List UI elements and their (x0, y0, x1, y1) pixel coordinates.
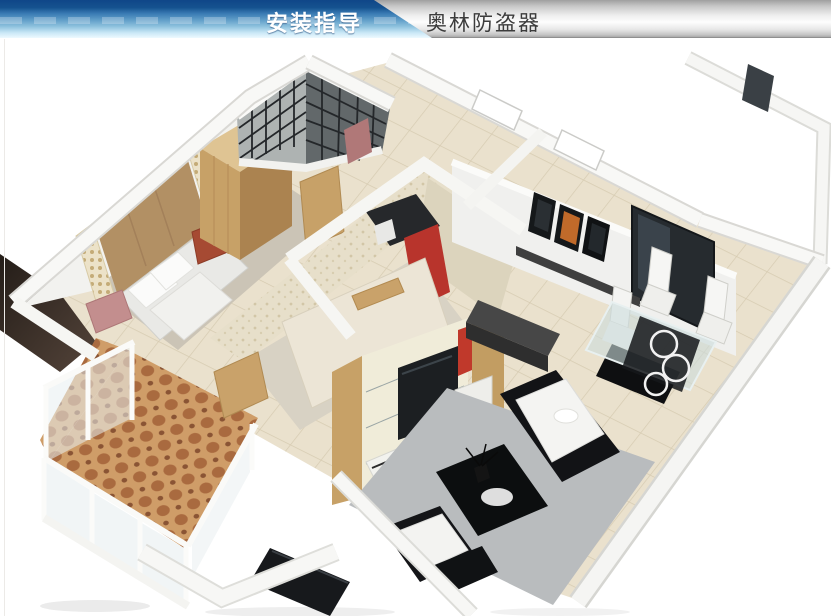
sofa1-pillow (554, 409, 578, 423)
table-plate (481, 488, 513, 506)
brand-label: 奥林防盗器 (426, 7, 541, 37)
floor-plan-image (0, 39, 831, 616)
tab-label[interactable]: 安装指导 (266, 6, 362, 38)
header-tab[interactable] (0, 0, 432, 38)
floor-plan-illustration (0, 39, 831, 616)
page-header: 安装指导 奥林防盗器 (0, 0, 831, 38)
image-left-border (4, 39, 5, 616)
